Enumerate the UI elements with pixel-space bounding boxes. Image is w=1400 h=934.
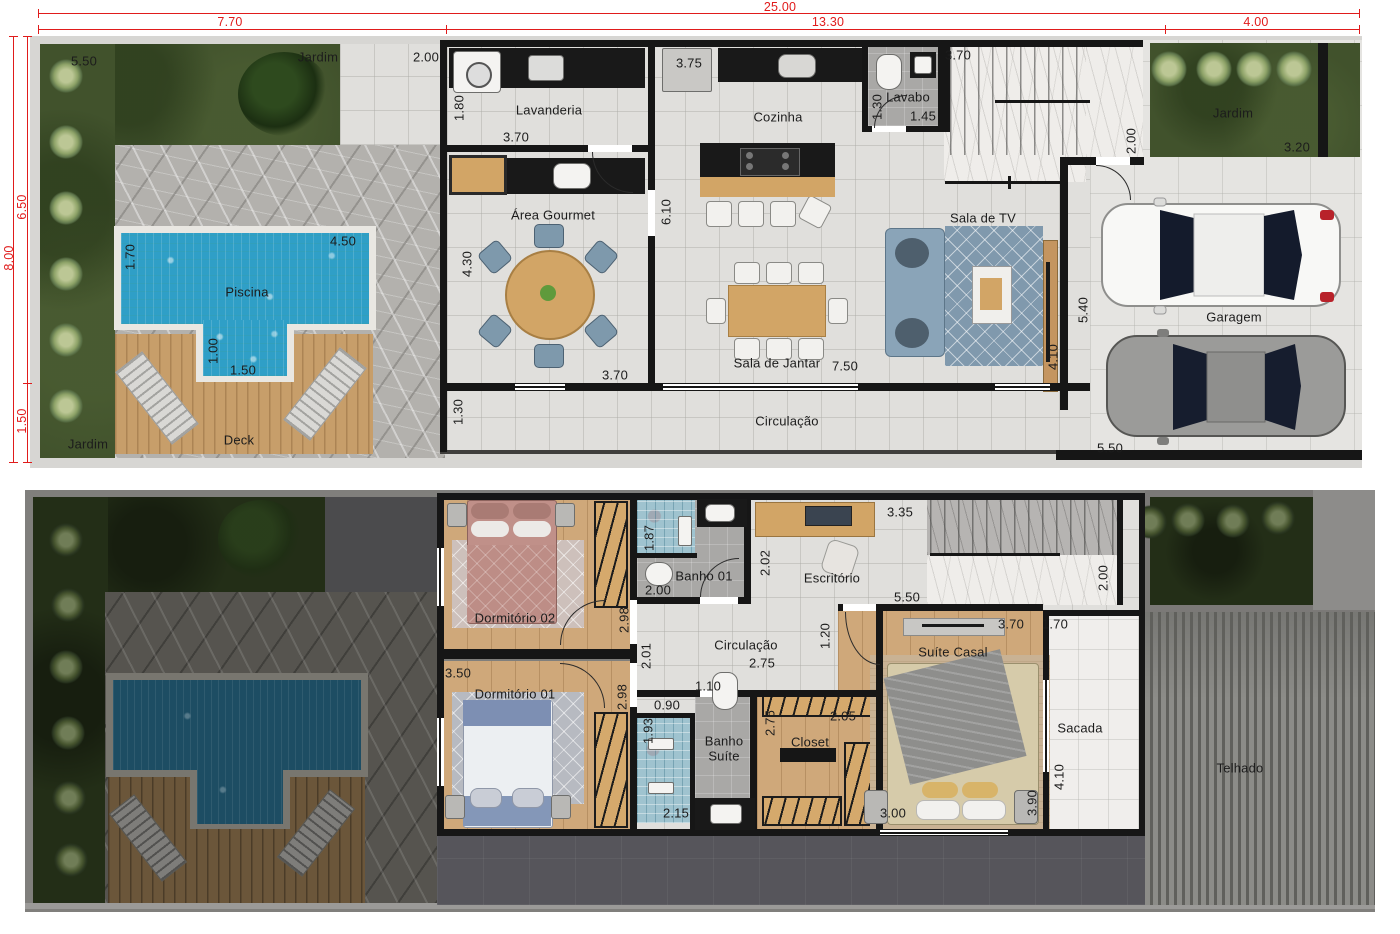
dimension-label: 2.01 bbox=[639, 643, 654, 669]
burner bbox=[782, 163, 789, 170]
dimension-label: 13.30 bbox=[812, 15, 844, 29]
shower-fixture bbox=[648, 782, 674, 794]
dimension-label: 6.50 bbox=[15, 194, 29, 219]
wall bbox=[440, 40, 1143, 47]
dimension-label: 3.70 bbox=[998, 617, 1024, 632]
dimension-label: 0.90 bbox=[654, 698, 680, 713]
room-label: Jardim bbox=[298, 50, 338, 65]
dimension-tick bbox=[23, 36, 32, 37]
dimension-label: 1.70 bbox=[1042, 617, 1068, 632]
shrub-dark bbox=[50, 715, 86, 751]
kitchen-sink bbox=[778, 54, 816, 78]
monitor bbox=[805, 506, 852, 526]
chair bbox=[734, 262, 760, 284]
toilet bbox=[876, 54, 902, 90]
upper-stairs-steps bbox=[930, 499, 1114, 555]
window-glass bbox=[663, 386, 858, 388]
dimension-label: 1.20 bbox=[818, 623, 833, 649]
garden-wall bbox=[1318, 43, 1328, 157]
gray-car bbox=[1103, 328, 1351, 446]
wall bbox=[437, 493, 1145, 500]
dimension-label: 3.35 bbox=[887, 505, 913, 520]
room-label: Jardim bbox=[68, 437, 108, 452]
tree-dark bbox=[218, 500, 304, 578]
stair-rail bbox=[930, 553, 1060, 556]
closet-wardrobe-bottom bbox=[762, 796, 842, 826]
room-label: Dormitório 02 bbox=[475, 611, 556, 626]
dimension-label: 5.50 bbox=[894, 590, 920, 605]
dimension-label: 5.50 bbox=[1097, 441, 1123, 456]
dimension-label: 2.02 bbox=[758, 550, 773, 576]
shrub-dark bbox=[50, 587, 86, 623]
shrub-dark bbox=[48, 522, 84, 558]
dimension-label: 2.15 bbox=[663, 806, 689, 821]
room-label: Escritório bbox=[804, 571, 860, 586]
wall bbox=[1139, 493, 1145, 836]
shower-fixture bbox=[678, 516, 692, 546]
shrub bbox=[48, 190, 84, 226]
shrub-dark bbox=[1170, 502, 1206, 538]
sofa-pillow bbox=[895, 238, 929, 268]
dimension-label: 1.10 bbox=[695, 679, 721, 694]
dimension-label: 3.50 bbox=[445, 666, 471, 681]
d02-headboard-pillow bbox=[513, 503, 551, 519]
dimension-label: 5.50 bbox=[71, 54, 97, 69]
dimension-label: 4.30 bbox=[460, 251, 475, 277]
room-label: Banho 01 bbox=[675, 569, 732, 584]
dimension-label: 25.00 bbox=[764, 0, 796, 14]
room-label: Lavabo bbox=[886, 90, 930, 105]
dimension-label: 4.10 bbox=[1046, 344, 1061, 370]
wall bbox=[1117, 493, 1123, 605]
sliding-door-handle bbox=[1008, 176, 1011, 189]
dimension-label: 1.45 bbox=[910, 109, 936, 124]
window-glass bbox=[515, 386, 565, 388]
burner bbox=[782, 152, 789, 159]
room-label: Jardim bbox=[1213, 106, 1253, 121]
shrub bbox=[48, 256, 84, 292]
banho01-sink bbox=[705, 504, 735, 522]
dimension-label: 2.00 bbox=[1096, 565, 1111, 591]
nightstand bbox=[447, 503, 467, 527]
dining-table bbox=[728, 285, 826, 337]
dimension-label: 4.00 bbox=[1243, 15, 1268, 29]
window-glass bbox=[995, 386, 1050, 388]
chair bbox=[534, 224, 564, 248]
dimension-label: 4.10 bbox=[1052, 764, 1067, 790]
d02-headboard-pillow bbox=[471, 503, 509, 519]
dimension-label: 2.75 bbox=[763, 710, 778, 736]
shrub-dark bbox=[53, 842, 89, 878]
corridor-edge bbox=[440, 450, 1090, 454]
dimension-label: 6.10 bbox=[659, 199, 674, 225]
dimension-tick bbox=[23, 462, 32, 463]
door-opening bbox=[588, 145, 632, 152]
room-label: Circulação bbox=[755, 414, 818, 429]
shrub-dark bbox=[1215, 503, 1251, 539]
shrub bbox=[1195, 50, 1233, 88]
shrub bbox=[1275, 50, 1313, 88]
room-label: Closet bbox=[791, 735, 829, 750]
dimension-label: 2.75 bbox=[749, 656, 775, 671]
room-label: Suíte Casal bbox=[918, 645, 987, 660]
wall bbox=[648, 40, 655, 152]
dimension-tick bbox=[1359, 25, 1360, 34]
room-label: Sala de Jantar bbox=[734, 356, 821, 371]
banho-suite-sink bbox=[710, 804, 742, 824]
door-opening bbox=[648, 190, 655, 236]
dimension-label: 3.70 bbox=[602, 368, 628, 383]
room-label: Cozinha bbox=[753, 110, 802, 125]
nightstand bbox=[555, 503, 575, 527]
d01-cushion bbox=[470, 788, 502, 808]
suite-pillow-yellow bbox=[922, 782, 958, 798]
wall bbox=[630, 690, 876, 697]
lavabo-sink bbox=[914, 56, 932, 74]
dimension-label: 5.40 bbox=[1076, 297, 1091, 323]
dimension-label: 2.98 bbox=[617, 607, 632, 633]
nightstand bbox=[445, 795, 465, 819]
suite-pillow-white bbox=[916, 800, 960, 820]
pool-dark bbox=[113, 680, 361, 770]
chair bbox=[828, 298, 848, 324]
door-opening bbox=[843, 604, 876, 611]
shrub bbox=[1235, 50, 1273, 88]
gourmet-sink bbox=[553, 163, 591, 189]
pool-extension-dark bbox=[197, 767, 283, 824]
window-glass bbox=[439, 718, 441, 786]
window-glass bbox=[1045, 680, 1047, 772]
shrub bbox=[1150, 50, 1188, 88]
lower-roof-strip bbox=[437, 835, 1145, 905]
gourmet-bench bbox=[449, 155, 507, 195]
white-car bbox=[1098, 196, 1346, 316]
dimension-label: 1.93 bbox=[641, 718, 656, 744]
dimension-label: 1.50 bbox=[230, 363, 256, 378]
room-label: Área Gourmet bbox=[511, 208, 595, 223]
burner bbox=[746, 152, 753, 159]
dimension-label: 1.70 bbox=[123, 244, 138, 270]
door-opening bbox=[1096, 157, 1130, 165]
nightstand bbox=[551, 795, 571, 819]
dimension-label: 7.50 bbox=[832, 359, 858, 374]
d02-wardrobe bbox=[594, 501, 628, 608]
suite-pillow-yellow bbox=[962, 782, 998, 798]
dimension-tick bbox=[23, 383, 32, 384]
dimension-label: 2.00 bbox=[645, 583, 671, 598]
room-label: Sala de TV bbox=[950, 211, 1016, 226]
shower-wall bbox=[637, 553, 697, 558]
coffee-table-tray bbox=[980, 278, 1002, 310]
shrub bbox=[48, 322, 84, 358]
wall bbox=[437, 829, 1145, 836]
room-label: Dormitório 01 bbox=[475, 687, 556, 702]
window-glass bbox=[439, 548, 441, 606]
dimension-label: 3.90 bbox=[1025, 790, 1040, 816]
room-label: Deck bbox=[224, 433, 254, 448]
door-opening bbox=[630, 663, 637, 707]
suite-tv-screen bbox=[922, 624, 984, 627]
telhado-roof bbox=[1139, 612, 1375, 905]
dimension-label: 2.00 bbox=[413, 50, 439, 65]
dimension-tick bbox=[446, 25, 447, 34]
room-label: Banho Suíte bbox=[699, 734, 749, 763]
chair bbox=[706, 298, 726, 324]
stairs-landing bbox=[927, 555, 1117, 605]
dimension-label: 3.20 bbox=[1284, 140, 1310, 155]
dimension-label: 2.98 bbox=[615, 684, 630, 710]
stair-rail bbox=[995, 100, 1090, 103]
room-label: Garagem bbox=[1206, 310, 1262, 325]
dimension-label: 2.05 bbox=[830, 709, 856, 724]
room-label: Lavanderia bbox=[516, 103, 582, 118]
burner bbox=[746, 163, 753, 170]
door-opening bbox=[700, 597, 738, 604]
dimension-label: 8.00 bbox=[2, 245, 16, 270]
dimension-label: 3.70 bbox=[945, 48, 971, 63]
room-label: Sacada bbox=[1057, 721, 1102, 736]
stool bbox=[770, 201, 796, 227]
dimension-tick bbox=[38, 9, 39, 18]
stool bbox=[738, 201, 764, 227]
wall bbox=[1060, 157, 1068, 410]
shrub-dark bbox=[48, 649, 84, 685]
shrub bbox=[48, 388, 84, 424]
room-label: Piscina bbox=[225, 285, 268, 300]
chair bbox=[798, 262, 824, 284]
dimension-label: 1.80 bbox=[452, 95, 467, 121]
dimension-tick bbox=[1359, 9, 1360, 18]
dimension-label: 3.75 bbox=[676, 56, 702, 71]
tile-dark bbox=[325, 497, 437, 592]
d02-pillow bbox=[471, 521, 509, 537]
dimension-line bbox=[27, 36, 28, 463]
chair bbox=[534, 344, 564, 368]
dimension-tick bbox=[9, 36, 18, 37]
chair bbox=[766, 262, 792, 284]
dimension-tick bbox=[38, 25, 39, 34]
wall bbox=[437, 649, 630, 659]
d02-pillow bbox=[513, 521, 551, 537]
floor-plan-canvas: 5.50Jardim2.001.80Lavanderia3.703.75Cozi… bbox=[0, 0, 1400, 934]
d01-wardrobe bbox=[594, 712, 628, 828]
island-bar bbox=[700, 177, 835, 197]
suite-pillow-white bbox=[962, 800, 1006, 820]
closet-partition bbox=[780, 748, 836, 762]
shrub-dark bbox=[51, 780, 87, 816]
dimension-label: 1.87 bbox=[642, 525, 657, 551]
dimension-tick bbox=[9, 462, 18, 463]
dimension-tick bbox=[1165, 25, 1166, 34]
dimension-label: 1.50 bbox=[15, 408, 29, 433]
side-band bbox=[1313, 490, 1375, 610]
dimension-label: 3.70 bbox=[503, 130, 529, 145]
shrub bbox=[48, 124, 84, 160]
d01-cushion bbox=[512, 788, 544, 808]
washer-drum bbox=[466, 62, 492, 88]
table-centerpiece bbox=[540, 285, 556, 301]
dimension-label: 2.00 bbox=[1124, 128, 1139, 154]
dimension-line bbox=[38, 29, 1360, 30]
wall bbox=[648, 152, 655, 390]
room-label: Telhado bbox=[1217, 761, 1264, 776]
window-glass bbox=[880, 832, 1008, 834]
suite-tv-panel bbox=[903, 618, 1005, 636]
d01-pillow-band bbox=[463, 700, 551, 726]
dimension-label: 1.00 bbox=[206, 338, 221, 364]
sliding-door bbox=[945, 181, 1065, 184]
shrub-dark bbox=[1260, 500, 1296, 536]
stool bbox=[706, 201, 732, 227]
wall bbox=[1043, 610, 1145, 616]
dimension-label: 1.30 bbox=[870, 94, 885, 120]
sofa-pillow bbox=[895, 318, 929, 348]
dimension-label: 1.30 bbox=[451, 399, 466, 425]
dimension-label: 4.50 bbox=[330, 234, 356, 249]
wall bbox=[862, 40, 868, 132]
dimension-label: 3.00 bbox=[880, 806, 906, 821]
dimension-label: 7.70 bbox=[217, 15, 242, 29]
tree bbox=[238, 52, 330, 136]
dimension-line bbox=[38, 13, 1360, 14]
room-label: Circulação bbox=[714, 638, 777, 653]
laundry-sink bbox=[528, 55, 564, 81]
